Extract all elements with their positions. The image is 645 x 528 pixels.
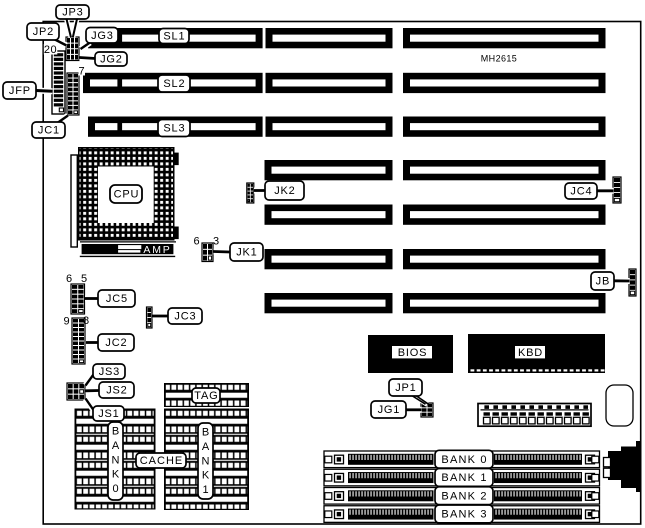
svg-text:SL3: SL3 bbox=[163, 123, 185, 135]
svg-text:SL2: SL2 bbox=[163, 78, 185, 90]
svg-text:1: 1 bbox=[202, 484, 208, 496]
svg-text:JP3: JP3 bbox=[62, 7, 83, 19]
svg-text:JG3: JG3 bbox=[91, 30, 114, 42]
svg-text:CPU: CPU bbox=[114, 189, 140, 201]
svg-text:MH2615: MH2615 bbox=[481, 54, 517, 64]
svg-text:JC3: JC3 bbox=[174, 311, 196, 323]
svg-text:AMP: AMP bbox=[143, 244, 171, 256]
svg-text:CACHE: CACHE bbox=[140, 455, 184, 467]
svg-text:K: K bbox=[202, 470, 210, 482]
svg-text:6: 6 bbox=[193, 236, 199, 248]
svg-text:BANK 1: BANK 1 bbox=[441, 472, 487, 484]
svg-text:JB: JB bbox=[596, 276, 610, 288]
svg-text:JC2: JC2 bbox=[105, 337, 127, 349]
svg-text:B: B bbox=[202, 427, 209, 439]
svg-text:BIOS: BIOS bbox=[398, 347, 428, 359]
svg-text:B: B bbox=[112, 426, 119, 438]
svg-text:3: 3 bbox=[213, 236, 219, 248]
svg-text:6: 6 bbox=[66, 273, 72, 285]
svg-text:JFP: JFP bbox=[9, 85, 31, 97]
svg-text:A: A bbox=[112, 440, 120, 452]
svg-text:JS1: JS1 bbox=[98, 408, 119, 420]
svg-text:BANK 2: BANK 2 bbox=[441, 490, 487, 502]
svg-text:JG2: JG2 bbox=[100, 54, 123, 66]
svg-text:BANK 0: BANK 0 bbox=[441, 454, 487, 466]
svg-text:N: N bbox=[202, 455, 210, 467]
svg-text:N: N bbox=[112, 454, 120, 466]
svg-text:5: 5 bbox=[81, 273, 87, 285]
svg-text:JC1: JC1 bbox=[38, 125, 60, 137]
svg-text:7: 7 bbox=[78, 66, 84, 78]
svg-text:JP2: JP2 bbox=[33, 26, 54, 38]
svg-text:JC4: JC4 bbox=[570, 186, 592, 198]
svg-text:JP1: JP1 bbox=[395, 382, 416, 394]
svg-text:BANK 3: BANK 3 bbox=[441, 509, 487, 521]
svg-text:A: A bbox=[202, 441, 210, 453]
svg-text:JS2: JS2 bbox=[106, 385, 127, 397]
svg-text:JS3: JS3 bbox=[99, 366, 120, 378]
svg-text:0: 0 bbox=[112, 483, 118, 495]
svg-text:TAG: TAG bbox=[194, 390, 218, 402]
svg-text:JK2: JK2 bbox=[274, 185, 295, 197]
svg-text:8: 8 bbox=[83, 315, 89, 327]
svg-text:KBD: KBD bbox=[518, 347, 543, 359]
svg-text:SL1: SL1 bbox=[163, 31, 185, 43]
svg-text:JC5: JC5 bbox=[106, 293, 128, 305]
svg-text:20: 20 bbox=[44, 44, 57, 56]
svg-text:9: 9 bbox=[63, 316, 69, 328]
svg-text:JG1: JG1 bbox=[378, 404, 401, 416]
svg-text:JK1: JK1 bbox=[236, 247, 257, 259]
svg-text:K: K bbox=[112, 469, 120, 481]
